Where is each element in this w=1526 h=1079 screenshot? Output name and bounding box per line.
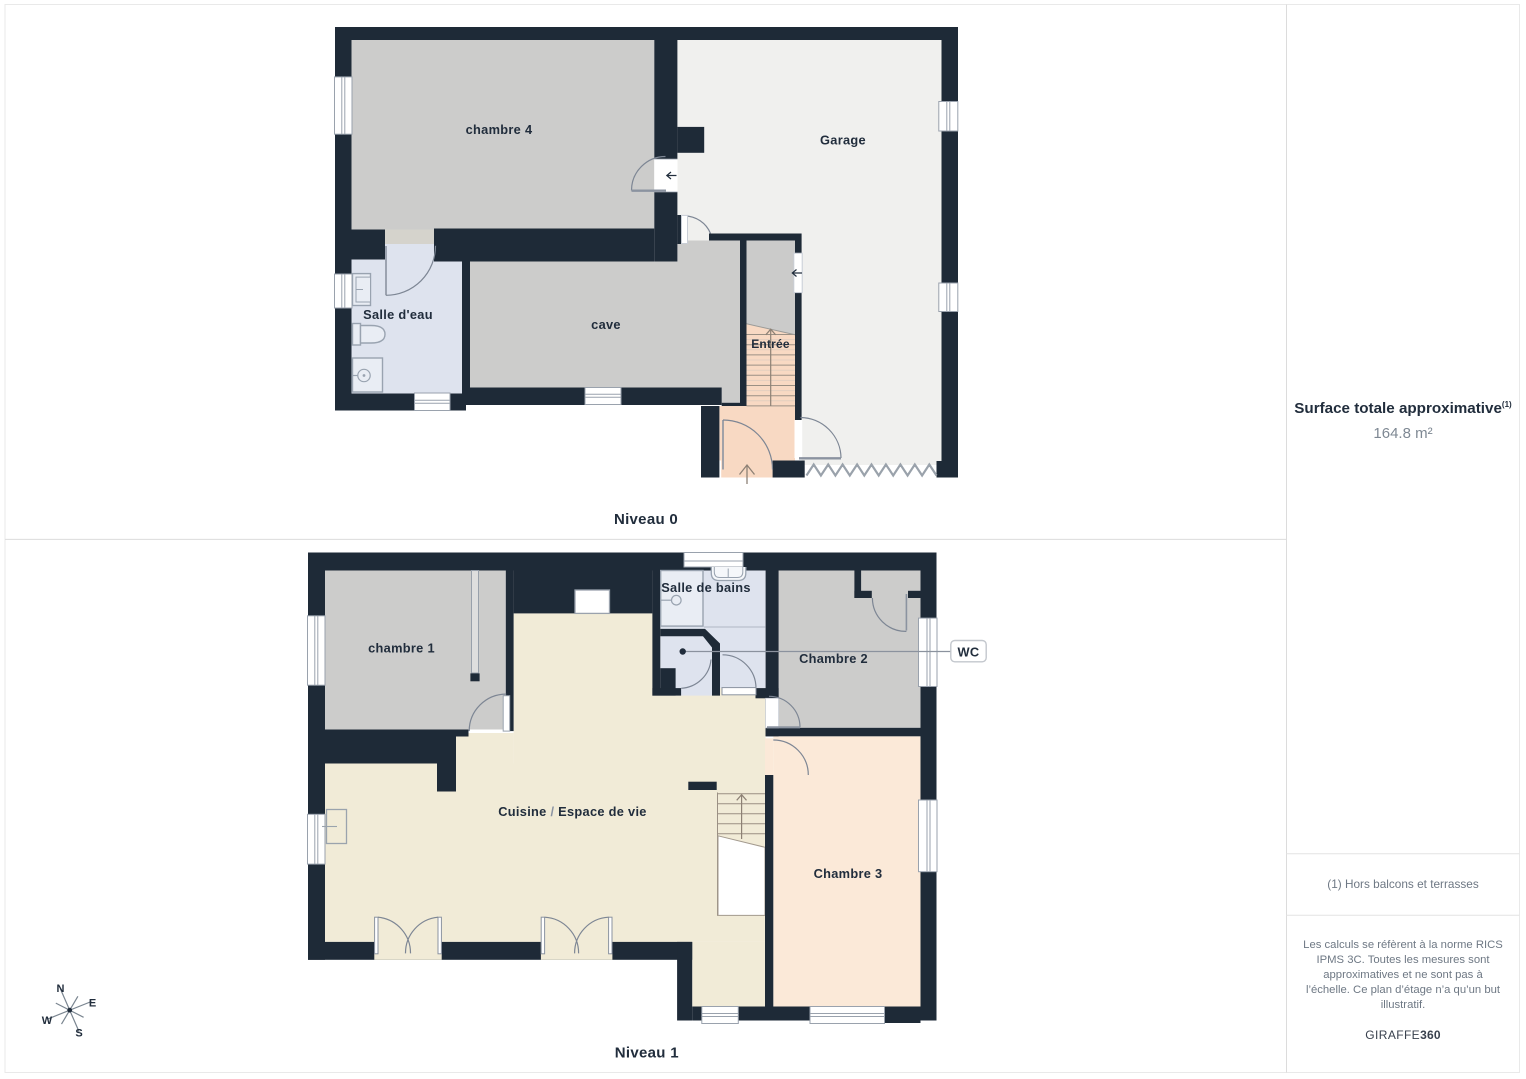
svg-text:Garage: Garage	[820, 133, 866, 148]
svg-text:chambre 1: chambre 1	[368, 641, 435, 656]
svg-text:W: W	[42, 1015, 53, 1027]
svg-text:Chambre 2: Chambre 2	[799, 651, 868, 666]
svg-text:164.8 m²: 164.8 m²	[1373, 425, 1432, 442]
svg-text:Surface totale approximative(1: Surface totale approximative(1)	[1294, 400, 1512, 417]
svg-text:Niveau 0: Niveau 0	[614, 511, 678, 528]
svg-text:WC: WC	[958, 644, 980, 659]
svg-text:Chambre 3: Chambre 3	[814, 866, 883, 881]
svg-text:IPMS 3C. Toutes les mesures so: IPMS 3C. Toutes les mesures sont	[1316, 954, 1490, 966]
svg-text:Salle de bains: Salle de bains	[661, 580, 751, 595]
svg-text:cave: cave	[591, 317, 621, 332]
svg-text:Les calculs se réfèrent à la n: Les calculs se réfèrent à la norme RICS	[1303, 939, 1503, 951]
svg-text:Cuisine / Espace de vie: Cuisine / Espace de vie	[498, 804, 646, 819]
svg-text:chambre 4: chambre 4	[466, 122, 533, 137]
svg-text:GIRAFFE360: GIRAFFE360	[1365, 1028, 1441, 1042]
svg-text:N: N	[57, 983, 65, 995]
svg-text:approximatives et ne sont pas: approximatives et ne sont pas à	[1323, 969, 1483, 981]
svg-text:Entrée: Entrée	[751, 337, 790, 351]
svg-text:Salle d'eau: Salle d'eau	[363, 307, 433, 322]
svg-text:Niveau 1: Niveau 1	[615, 1045, 679, 1062]
svg-text:S: S	[75, 1028, 82, 1040]
svg-text:(1) Hors balcons et terrasses: (1) Hors balcons et terrasses	[1327, 877, 1479, 891]
svg-text:l’échelle. Ce plan d’étage n’a: l’échelle. Ce plan d’étage n’a qu’un but	[1306, 984, 1501, 996]
svg-text:illustratif.: illustratif.	[1381, 999, 1426, 1011]
svg-text:E: E	[89, 998, 96, 1010]
